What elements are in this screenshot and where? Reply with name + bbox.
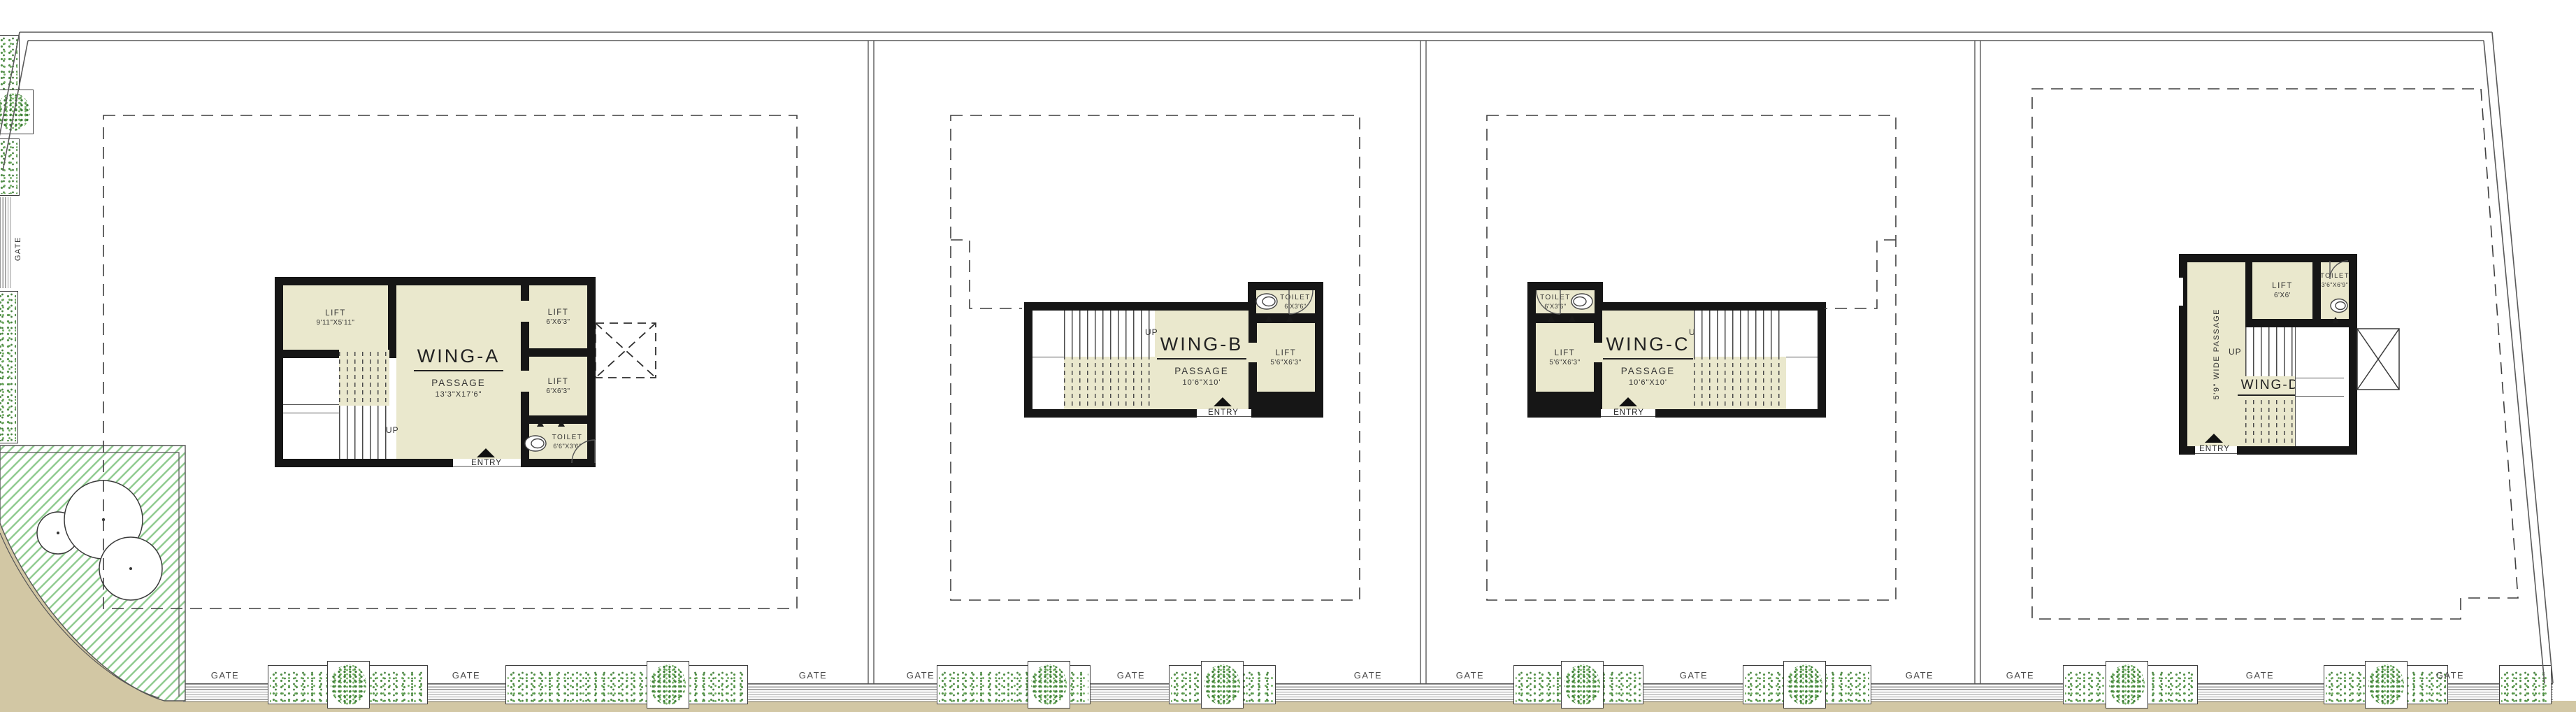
tree-planter xyxy=(327,661,370,709)
wall xyxy=(2312,254,2321,322)
gate-label: GATE xyxy=(1680,670,1708,681)
wing-d-lift: LIFT 6'X6' xyxy=(2252,262,2312,319)
wall xyxy=(1655,409,1826,418)
lift-dims: 9'11"X5'11" xyxy=(317,319,355,327)
toilet-dims: 6'X3'6" xyxy=(1544,303,1566,310)
gate-label: GATE xyxy=(907,670,935,681)
stairs xyxy=(2245,327,2295,376)
stair-line xyxy=(283,404,339,405)
up-label: UP xyxy=(1145,327,1158,337)
tree-planter xyxy=(1561,661,1604,709)
wing-a-title: WING-A xyxy=(414,346,504,371)
wall xyxy=(1248,313,1323,323)
gate-label: GATE xyxy=(452,670,480,681)
wing-a-toilet: TOILET 6'6"X3'6" xyxy=(529,424,587,459)
tree-icon xyxy=(1031,664,1067,705)
garden-inner-line xyxy=(0,453,179,697)
tree-icon xyxy=(2109,664,2145,705)
lift-label: LIFT xyxy=(1555,349,1576,357)
wing-b-lift: LIFT 5'6"X6'3" xyxy=(1257,323,1315,392)
stairs-lower-dashed xyxy=(2245,397,2295,446)
wall xyxy=(1024,302,1032,418)
fixture-tick xyxy=(537,315,2339,427)
wall xyxy=(1249,323,1257,409)
gate-label: GATE xyxy=(1354,670,1382,681)
wall xyxy=(529,415,587,424)
wall xyxy=(529,348,587,357)
wing-a-lift-top: LIFT 6'X6'3" xyxy=(529,285,587,348)
door-arc xyxy=(572,261,2348,463)
wall xyxy=(2179,254,2357,262)
tree-icon xyxy=(37,480,162,600)
tree-icon xyxy=(0,93,30,131)
wall xyxy=(1527,282,1536,418)
wing-c-passage-dims: 10'6"X10' xyxy=(1629,378,1667,387)
wall xyxy=(1818,302,1826,418)
planter xyxy=(0,291,18,443)
gate-label: GATE xyxy=(211,670,239,681)
door-opening xyxy=(1594,343,1602,362)
wall xyxy=(2179,446,2195,455)
wing-c-lift: LIFT 5'6"X6'3" xyxy=(1536,323,1594,392)
wing-a-passage-label: PASSAGE xyxy=(431,378,486,388)
planter xyxy=(0,138,20,196)
tree-center-dot xyxy=(57,518,132,570)
wall xyxy=(1594,323,1602,409)
wall xyxy=(1251,409,1323,418)
hedge xyxy=(0,37,17,95)
tree-icon xyxy=(1204,664,1240,705)
lift-label: LIFT xyxy=(2272,282,2293,290)
planter xyxy=(2499,665,2552,704)
stair-line xyxy=(2295,378,2344,378)
stair-landing xyxy=(2295,327,2345,446)
wall xyxy=(1527,409,1601,418)
wing-b-passage-label: PASSAGE xyxy=(1174,366,1229,376)
wall xyxy=(1536,392,1594,409)
lift-dims: 6'X6' xyxy=(2274,292,2291,299)
wall xyxy=(2245,319,2357,327)
toilet-label: TOILET xyxy=(2320,272,2350,280)
wall xyxy=(1248,282,1323,290)
tree-planter xyxy=(1783,661,1826,709)
toilet-dims: 6'X3'6" xyxy=(1284,303,1306,310)
wing-a-lift-mid: LIFT 6'X6'3" xyxy=(529,357,587,415)
hedge xyxy=(508,671,746,702)
lift-label: LIFT xyxy=(1276,349,1297,357)
wing-c-toilet: TOILET 6'X3'6" xyxy=(1536,290,1595,313)
door-opening xyxy=(1249,343,1257,362)
tree-icon xyxy=(650,664,686,705)
stair-line xyxy=(2295,396,2344,397)
entry-threshold xyxy=(2195,453,2237,454)
stair-landing xyxy=(1786,311,1818,409)
wing-d-toilet: TOILET 3'6"X6'9" xyxy=(2321,262,2349,319)
wall xyxy=(388,277,396,358)
wall xyxy=(275,277,596,285)
gate-label: GATE xyxy=(2006,670,2034,681)
stairs-upper-dashed xyxy=(339,350,389,406)
tree-icon xyxy=(331,664,366,705)
wing-b-title: WING-B xyxy=(1157,334,1247,359)
wing-b-toilet: TOILET 6'X3'6" xyxy=(1256,290,1315,313)
wing-b-passage-dims: 10'6"X10' xyxy=(1182,378,1221,387)
wall xyxy=(1527,313,1603,323)
stairs-lower-dashed xyxy=(1694,357,1786,409)
canopy-box xyxy=(2357,329,2399,390)
toilet-dims: 3'6"X6'9" xyxy=(2322,281,2348,288)
up-label: UP xyxy=(2229,347,2242,357)
toilet-dims: 6'6"X3'6" xyxy=(553,443,581,450)
entry-arrow-icon xyxy=(477,448,495,457)
wall xyxy=(1315,282,1323,418)
stair-line xyxy=(283,413,339,413)
entry-label: ENTRY xyxy=(471,459,502,467)
toilet-label: TOILET xyxy=(1280,294,1311,301)
entry-label: ENTRY xyxy=(2199,445,2230,453)
entry-arrow-icon xyxy=(1619,397,1637,406)
tree-planter xyxy=(647,661,689,709)
wing-d-passage-label: 5'9" WIDE PASSAGE xyxy=(2212,308,2221,399)
stair-line xyxy=(1786,357,1818,357)
lift-dims: 6'X6'3" xyxy=(546,318,570,326)
wall xyxy=(275,277,283,467)
lift-dims: 5'6"X6'3" xyxy=(1549,359,1580,366)
wing-c-passage-label: PASSAGE xyxy=(1621,366,1676,376)
wall xyxy=(2237,446,2357,455)
stairs xyxy=(1694,311,1786,357)
wing-a-lift-main: LIFT 9'11"X5'11" xyxy=(283,285,388,350)
wing-c-passage: WING-C PASSAGE 10'6"X10' xyxy=(1602,311,1694,409)
stair-line xyxy=(1032,357,1064,357)
gate-label: GATE xyxy=(1117,670,1145,681)
up-label: UP xyxy=(386,425,399,435)
tree-planter xyxy=(2365,661,2408,709)
wing-d-title: WING-D xyxy=(2238,378,2303,396)
entry-arrow-icon xyxy=(2205,434,2223,443)
entry-label: ENTRY xyxy=(1208,408,1239,417)
lift-label: LIFT xyxy=(548,308,569,317)
door-opening xyxy=(521,301,529,322)
entry-arrow-icon xyxy=(1214,397,1232,406)
lift-dims: 5'6"X6'3" xyxy=(1270,359,1301,366)
site-plan: GATE GATE GATE GATE GATE GATE GATE GATE … xyxy=(0,0,2576,712)
tree-icon xyxy=(1787,664,1822,705)
wall xyxy=(2349,254,2357,455)
door-opening xyxy=(521,371,529,392)
lift-label: LIFT xyxy=(325,309,346,318)
stairs-lower-dashed xyxy=(1064,357,1155,409)
tree-icon xyxy=(2368,664,2404,705)
garden xyxy=(0,446,185,701)
wall xyxy=(1024,302,1251,311)
road-corner xyxy=(0,523,164,701)
stairs xyxy=(1064,311,1155,357)
wall xyxy=(521,459,596,467)
tree-icon xyxy=(1564,664,1600,705)
planter xyxy=(505,665,748,704)
wall xyxy=(275,459,453,467)
wing-d-stair-mid: WING-D xyxy=(2245,376,2295,397)
hedge xyxy=(0,293,16,441)
lift-label: LIFT xyxy=(548,378,569,386)
hedge xyxy=(0,141,17,194)
toilet-label: TOILET xyxy=(1540,294,1571,301)
wall xyxy=(1527,282,1603,290)
hedge xyxy=(2501,671,2549,702)
garden-curve-line xyxy=(0,533,159,698)
stairs xyxy=(339,406,389,459)
toilet-label: TOILET xyxy=(552,434,583,441)
wall xyxy=(587,277,596,467)
gate-label: GATE xyxy=(1456,670,1484,681)
canopy-box-dashed xyxy=(596,323,656,378)
wing-b-passage: WING-B PASSAGE 10'6"X10' xyxy=(1155,311,1249,409)
entry-label: ENTRY xyxy=(1613,408,1644,417)
gate-label: GATE xyxy=(1906,670,1934,681)
stair-landing xyxy=(1032,311,1064,409)
wing-a-passage-dims: 13'3"X17'6" xyxy=(435,390,482,399)
tree-planter xyxy=(1201,661,1244,709)
tree-planter xyxy=(0,90,34,134)
toilet-fixture-icon xyxy=(525,294,2347,451)
gate-grill xyxy=(0,197,13,288)
wall xyxy=(2245,262,2252,322)
planter xyxy=(0,35,20,97)
wall-niche xyxy=(2179,278,2183,306)
wall xyxy=(1257,392,1315,409)
tree-planter xyxy=(2106,661,2148,709)
tree-planter xyxy=(1028,661,1070,709)
wing-a-passage: WING-A PASSAGE 13'3"X17'6" xyxy=(396,285,521,459)
gate-label: GATE xyxy=(2436,670,2464,681)
stair-landing xyxy=(283,358,339,459)
wall xyxy=(1596,302,1826,311)
wing-c-title: WING-C xyxy=(1603,334,1694,359)
gate-label: GATE xyxy=(2246,670,2274,681)
gate-label: GATE xyxy=(14,236,22,261)
gate-label: GATE xyxy=(799,670,827,681)
lift-dims: 6'X6'3" xyxy=(546,387,570,395)
wall xyxy=(1024,409,1197,418)
